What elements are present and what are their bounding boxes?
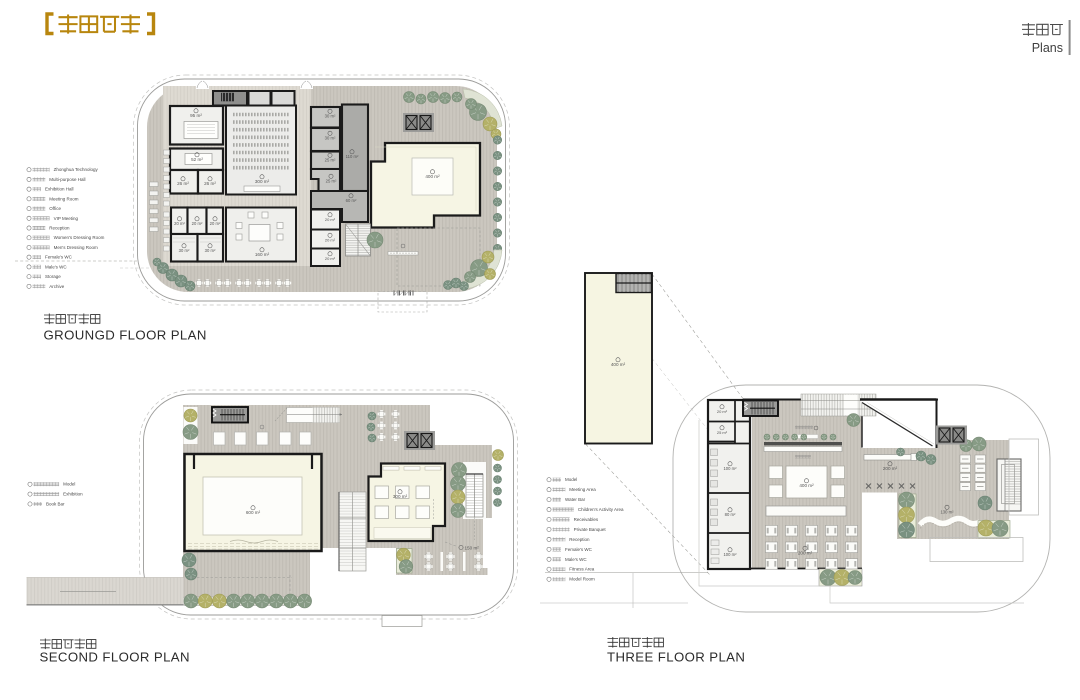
svg-text:Multi-purpose Hall: Multi-purpose Hall: [49, 177, 85, 182]
svg-text:100 m²: 100 m²: [723, 466, 737, 471]
svg-text:30 m²: 30 m²: [205, 248, 216, 253]
svg-text:300 m²: 300 m²: [255, 179, 270, 184]
svg-text:30 m²: 30 m²: [325, 136, 336, 141]
svg-text:25 m²: 25 m²: [717, 430, 728, 435]
svg-text:Plans: Plans: [1032, 41, 1063, 55]
svg-text:600 m²: 600 m²: [246, 510, 261, 515]
svg-text:110 m²: 110 m²: [346, 154, 359, 159]
svg-text:Water Bar: Water Bar: [565, 497, 586, 502]
svg-text:Reception: Reception: [49, 226, 70, 231]
svg-text:52 m²: 52 m²: [191, 157, 203, 162]
svg-text:Reception: Reception: [569, 537, 590, 542]
svg-text:60 m²: 60 m²: [346, 198, 357, 203]
svg-text:80 m²: 80 m²: [725, 512, 736, 517]
svg-text:Office: Office: [49, 206, 61, 211]
svg-text:20 m²: 20 m²: [192, 221, 203, 226]
svg-text:Zhonghua Technology: Zhonghua Technology: [54, 167, 99, 172]
svg-text:400 m²: 400 m²: [611, 362, 626, 367]
svg-text:20 m²: 20 m²: [717, 409, 728, 414]
svg-text:130 m²: 130 m²: [940, 510, 954, 515]
svg-text:20 m²: 20 m²: [325, 238, 336, 243]
svg-text:Women's Dressing Room: Women's Dressing Room: [54, 235, 105, 240]
svg-text:VIP Meeting: VIP Meeting: [54, 216, 79, 221]
svg-text:Book Bar: Book Bar: [46, 502, 65, 507]
svg-text:GROUNGD FLOOR PLAN: GROUNGD FLOOR PLAN: [44, 328, 207, 343]
svg-text:Model: Model: [565, 477, 577, 482]
svg-text:Meeting Area: Meeting Area: [569, 487, 596, 492]
svg-text:95 m²: 95 m²: [190, 113, 202, 118]
svg-text:100 m²: 100 m²: [723, 552, 737, 557]
svg-text:20 m²: 20 m²: [325, 256, 336, 261]
svg-text:200 m²: 200 m²: [798, 551, 813, 556]
svg-text:Female's WC: Female's WC: [45, 255, 73, 260]
svg-text:Storage: Storage: [45, 274, 61, 279]
svg-text:25 m²: 25 m²: [326, 179, 337, 184]
svg-text:400 m²: 400 m²: [425, 174, 440, 179]
svg-text:25 m²: 25 m²: [325, 158, 336, 163]
svg-text:Receivables: Receivables: [574, 517, 599, 522]
svg-text:Male's WC: Male's WC: [45, 264, 67, 269]
svg-text:200 m²: 200 m²: [883, 466, 898, 471]
svg-text:160 m²: 160 m²: [255, 252, 270, 257]
svg-text:30 m²: 30 m²: [325, 114, 336, 119]
svg-text:26 m²: 26 m²: [204, 181, 216, 186]
svg-text:Archive: Archive: [49, 284, 65, 289]
svg-text:Private Banquet: Private Banquet: [574, 527, 607, 532]
svg-text:Male's WC: Male's WC: [565, 557, 587, 562]
svg-text:26 m²: 26 m²: [177, 181, 189, 186]
svg-text:20 m²: 20 m²: [174, 221, 185, 226]
svg-text:SECOND FLOOR PLAN: SECOND FLOOR PLAN: [40, 650, 190, 665]
svg-text:Meeting Room: Meeting Room: [49, 196, 79, 201]
svg-text:Children's Activity Area: Children's Activity Area: [578, 507, 624, 512]
svg-text:Model Room: Model Room: [569, 577, 595, 582]
svg-text:Exhibition: Exhibition: [63, 492, 83, 497]
svg-text:Female's WC: Female's WC: [565, 547, 593, 552]
svg-text:20 m²: 20 m²: [210, 221, 221, 226]
svg-text:30 m²: 30 m²: [179, 248, 190, 253]
svg-text:THREE FLOOR PLAN: THREE FLOOR PLAN: [607, 650, 745, 665]
svg-text:300 m²: 300 m²: [393, 494, 408, 499]
svg-text:20 m²: 20 m²: [325, 217, 336, 222]
svg-text:Men's Dressing Room: Men's Dressing Room: [54, 245, 98, 250]
svg-text:Exhibition Hall: Exhibition Hall: [45, 187, 74, 192]
svg-text:400 m²: 400 m²: [799, 483, 814, 488]
svg-text:Model: Model: [63, 482, 75, 487]
svg-text:Fitness Area: Fitness Area: [569, 567, 595, 572]
svg-text:150 m²: 150 m²: [465, 546, 480, 551]
